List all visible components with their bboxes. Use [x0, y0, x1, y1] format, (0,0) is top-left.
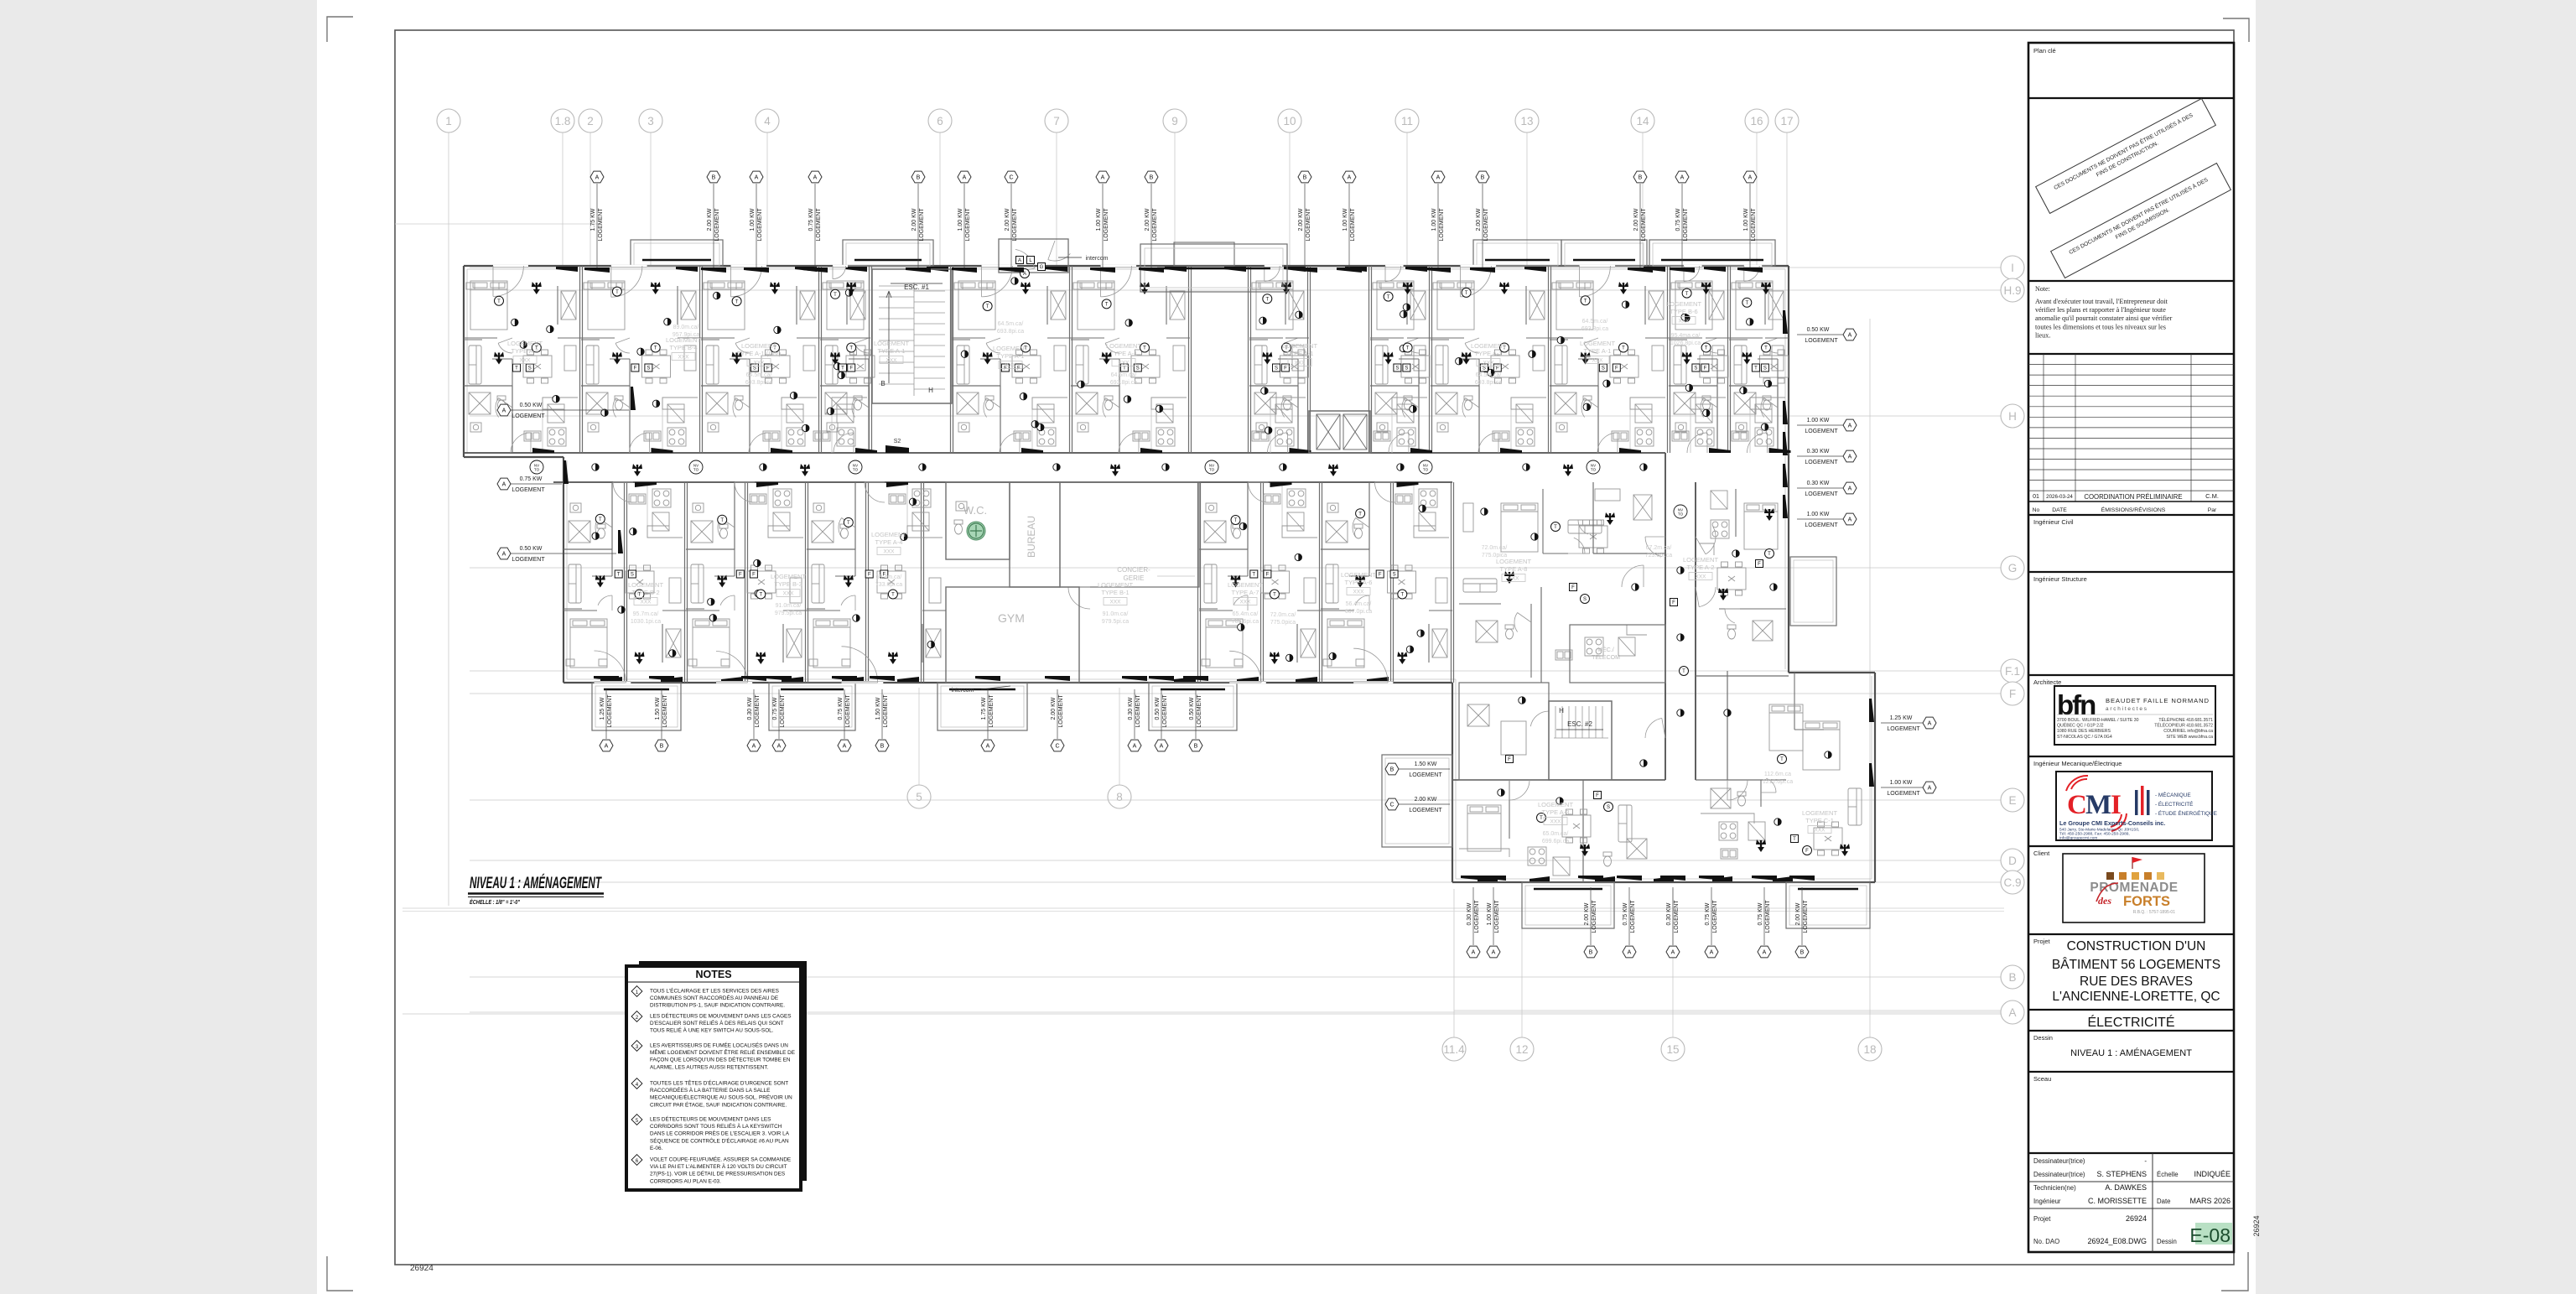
svg-text:LOGEMENT: LOGEMENT: [1805, 460, 1838, 465]
svg-text:0.75 KW: 0.75 KW: [1758, 902, 1763, 925]
svg-text:S: S: [1602, 366, 1605, 372]
svg-text:F: F: [739, 573, 742, 578]
svg-text:1.00 KW: 1.00 KW: [1890, 780, 1913, 786]
svg-text:B: B: [1194, 744, 1198, 750]
svg-text:XXX: XXX: [1592, 358, 1603, 364]
svg-text:Dessinateur(trice): Dessinateur(trice): [2033, 1171, 2085, 1178]
svg-text:MARS 2026: MARS 2026: [2189, 1197, 2231, 1205]
svg-text:B: B: [1589, 950, 1593, 956]
svg-text:16: 16: [1750, 115, 1763, 127]
svg-text:2: 2: [636, 1015, 639, 1021]
svg-text:LOGEMENT: LOGEMENT: [1012, 208, 1018, 242]
svg-text:1.8: 1.8: [555, 115, 571, 127]
svg-text:A: A: [1436, 175, 1441, 181]
svg-text:26924: 26924: [410, 1264, 434, 1273]
svg-text:BUREAU: BUREAU: [1026, 516, 1037, 558]
svg-text:XXX: XXX: [1508, 576, 1519, 582]
svg-text:T: T: [1105, 303, 1109, 308]
svg-text:A: A: [1671, 950, 1675, 956]
svg-text:11.4: 11.4: [1443, 1043, 1465, 1056]
svg-text:CONCIER-: CONCIER-: [1117, 566, 1150, 574]
svg-text:LOGEMENT: LOGEMENT: [1409, 772, 1442, 778]
svg-text:D: D: [2008, 855, 2017, 867]
svg-text:T: T: [1554, 525, 1557, 530]
svg-text:A: A: [1160, 744, 1164, 750]
svg-text:S: S: [753, 366, 756, 372]
svg-text:XXX: XXX: [885, 358, 897, 364]
svg-text:LOGEMENT: LOGEMENT: [1805, 522, 1838, 528]
svg-text:1.00 KW: 1.00 KW: [1343, 208, 1348, 231]
svg-text:0.50 KW: 0.50 KW: [1189, 697, 1195, 720]
svg-text:A: A: [986, 744, 990, 750]
svg-text:Note:: Note:: [2035, 285, 2050, 293]
svg-text:TO: TO: [693, 468, 699, 472]
svg-text:F: F: [1496, 366, 1499, 372]
svg-text:S: S: [1395, 366, 1399, 372]
svg-text:FORTS: FORTS: [2123, 894, 2170, 909]
svg-text:XXX: XXX: [1678, 319, 1690, 325]
svg-text:TYPE A-1: TYPE A-1: [878, 347, 906, 355]
svg-text:XXX: XXX: [1118, 361, 1130, 366]
svg-text:0.30 KW: 0.30 KW: [747, 697, 753, 720]
svg-text:G: G: [1040, 265, 1044, 270]
svg-text:TO: TO: [1591, 468, 1597, 472]
svg-text:B: B: [1800, 950, 1805, 956]
svg-text:2.00 KW: 2.00 KW: [1633, 208, 1639, 231]
svg-text:B: B: [712, 175, 716, 181]
svg-text:S: S: [1607, 805, 1610, 810]
svg-text:INDIQUÉE: INDIQUÉE: [2194, 1170, 2231, 1178]
svg-text:XXX: XXX: [782, 591, 794, 597]
svg-text:S: S: [528, 366, 532, 372]
svg-text:2.00 KW: 2.00 KW: [1476, 208, 1482, 231]
svg-text:VIA LE PAI ET L'ALIMENTER À 12: VIA LE PAI ET L'ALIMENTER À 120 VOLTS DU…: [650, 1162, 787, 1170]
svg-text:T: T: [847, 521, 850, 526]
svg-text:T: T: [834, 293, 837, 298]
svg-text:lieux.: lieux.: [2035, 331, 2050, 339]
svg-text:T: T: [1252, 573, 1255, 578]
svg-text:723.3pi.ca: 723.3pi.ca: [1645, 553, 1672, 559]
svg-text:CORRIDORS AU PLAN E-03.: CORRIDORS AU PLAN E-03.: [650, 1178, 721, 1184]
svg-text:Avant d'exécuter tout travail,: Avant d'exécuter tout travail, l'Entrepr…: [2035, 298, 2168, 305]
svg-text:65.0m.ca/: 65.0m.ca/: [1543, 831, 1569, 837]
svg-text:2: 2: [587, 115, 594, 127]
svg-text:S: S: [1136, 366, 1140, 372]
svg-text:A: A: [1848, 517, 1852, 523]
svg-text:1: 1: [445, 115, 452, 127]
svg-text:F: F: [1704, 366, 1707, 372]
svg-text:XXX: XXX: [883, 549, 895, 555]
svg-text:H: H: [2008, 410, 2017, 423]
svg-text:TOUTES LES TÊTES D'ÉCLAIRAGE D: TOUTES LES TÊTES D'ÉCLAIRAGE D'URGENCE S…: [650, 1079, 788, 1087]
svg-text:693.8pi.ca: 693.8pi.ca: [1475, 380, 1502, 386]
svg-text:Client: Client: [2033, 850, 2050, 857]
svg-text:ST-NICOLAS QC / G7A 0G4: ST-NICOLAS QC / G7A 0G4: [2057, 735, 2112, 740]
svg-text:LOGEMENT: LOGEMENT: [607, 694, 613, 728]
svg-text:bfn: bfn: [2057, 689, 2096, 720]
svg-text:112.6m.ca: 112.6m.ca: [1764, 772, 1791, 777]
svg-text:T: T: [497, 299, 501, 304]
svg-text:693.8pi.ca: 693.8pi.ca: [1581, 326, 1608, 332]
svg-text:A: A: [1763, 950, 1767, 956]
svg-text:DANS LE CORRIDOR PRÈS DE L'ESC: DANS LE CORRIDOR PRÈS DE L'ESCALIER 3. V…: [650, 1130, 790, 1137]
svg-text:5: 5: [916, 791, 922, 803]
svg-text:1.75 KW: 1.75 KW: [590, 208, 596, 231]
svg-text:S: S: [1583, 597, 1587, 602]
svg-text:693.8pi.ca: 693.8pi.ca: [745, 380, 772, 386]
svg-text:TYPE A-1: TYPE A-1: [1110, 350, 1138, 357]
svg-text:A: A: [1492, 950, 1496, 956]
svg-text:F: F: [868, 573, 871, 578]
svg-text:XXX: XXX: [1294, 361, 1306, 366]
svg-text:COORDINATION PRÉLIMINAIRE: COORDINATION PRÉLIMINAIRE: [2084, 493, 2182, 501]
svg-text:0.75 KW: 0.75 KW: [1675, 208, 1681, 231]
svg-text:XXX: XXX: [678, 355, 689, 361]
svg-text:LOGEMENT: LOGEMENT: [1712, 900, 1718, 933]
svg-text:TYPE A-1 (INV): TYPE A-1 (INV): [737, 350, 782, 357]
svg-text:intercom: intercom: [1086, 256, 1109, 262]
svg-text:C: C: [1055, 744, 1059, 750]
svg-text:T: T: [1273, 593, 1276, 598]
svg-text:TYPE A-1: TYPE A-1: [1475, 350, 1503, 357]
svg-text:XXX: XXX: [1483, 361, 1494, 366]
svg-text:Plan clé: Plan clé: [2033, 47, 2056, 55]
svg-text:LOGEMENT: LOGEMENT: [714, 208, 720, 242]
svg-text:architectes: architectes: [2106, 706, 2148, 712]
svg-text:GYM: GYM: [998, 611, 1025, 625]
svg-text:LOGEMENT: LOGEMENT: [883, 694, 889, 728]
svg-text:LOGEMENT: LOGEMENT: [512, 487, 545, 493]
svg-text:F: F: [849, 366, 853, 372]
svg-text:Échelle: Échelle: [2157, 1171, 2179, 1178]
svg-text:T: T: [1768, 552, 1771, 557]
svg-text:LOGEMENT: LOGEMENT: [755, 694, 761, 728]
svg-text:T: T: [1234, 518, 1238, 523]
svg-text:LOGEMENT: LOGEMENT: [1592, 900, 1597, 933]
svg-text:MÉC./: MÉC./: [1597, 646, 1614, 653]
svg-text:T: T: [1400, 593, 1404, 598]
svg-text:A: A: [1018, 258, 1021, 263]
svg-text:T: T: [1465, 291, 1468, 296]
svg-text:64.5m.ca/: 64.5m.ca/: [998, 321, 1024, 327]
svg-text:A: A: [1472, 950, 1476, 956]
svg-text:0.50 KW: 0.50 KW: [520, 403, 543, 408]
svg-text:LOGEMENT: LOGEMENT: [1341, 571, 1377, 579]
svg-text:VOLET COUPE-FEU/FUMÉE. ASSURER: VOLET COUPE-FEU/FUMÉE. ASSURER SA COMMAN…: [650, 1156, 791, 1163]
svg-text:0.75 KW: 0.75 KW: [838, 697, 844, 720]
svg-text:FAÇON QUE LORSQU'UN DES DÉTECT: FAÇON QUE LORSQU'UN DES DÉTECTEUR TOMBE …: [650, 1056, 791, 1063]
svg-text:A: A: [752, 744, 756, 750]
svg-text:LOGEMENT: LOGEMENT: [1058, 694, 1064, 728]
svg-text:LOGEMENT: LOGEMENT: [1162, 694, 1168, 728]
svg-text:A: A: [963, 175, 967, 181]
svg-text:LOGEMENT: LOGEMENT: [1805, 338, 1838, 344]
svg-text:C. MORISSETTE: C. MORISSETTE: [2088, 1197, 2147, 1205]
svg-text:0.50 KW: 0.50 KW: [1155, 697, 1161, 720]
svg-text:T: T: [617, 573, 621, 578]
svg-text:0.50 KW: 0.50 KW: [520, 546, 543, 552]
svg-text:T: T: [1622, 346, 1625, 351]
svg-text:TYPE B-2: TYPE B-2: [631, 589, 659, 596]
svg-text:T: T: [1764, 346, 1768, 351]
svg-text:5: 5: [636, 1118, 639, 1124]
svg-text:ESC. #2: ESC. #2: [1567, 720, 1592, 728]
svg-text:LOGEMENT: LOGEMENT: [1538, 801, 1574, 808]
svg-text:1.00 KW: 1.00 KW: [1487, 902, 1493, 925]
svg-text:LOGEMENT: LOGEMENT: [1228, 581, 1264, 589]
svg-text:CIRCUIT PAR ÉTAGE, SAUF INDICA: CIRCUIT PAR ÉTAGE, SAUF INDICATION CONTR…: [650, 1100, 787, 1108]
svg-text:64.5m.ca/: 64.5m.ca/: [1582, 319, 1608, 325]
svg-text:699.6pi.ca: 699.6pi.ca: [1542, 839, 1569, 844]
svg-text:1212.0pi.ca: 1212.0pi.ca: [1763, 779, 1793, 785]
svg-text:ESC. #1: ESC. #1: [904, 283, 929, 291]
svg-text:A: A: [1848, 455, 1852, 460]
svg-text:Architecte: Architecte: [2033, 678, 2061, 686]
svg-text:64.5m.ca/: 64.5m.ca/: [1111, 372, 1137, 378]
svg-text:T: T: [1265, 297, 1269, 302]
svg-text:72.0m.ca/: 72.0m.ca/: [1270, 612, 1296, 618]
svg-text:- ÉTUDE ÉNERGÉTIQUE: - ÉTUDE ÉNERGÉTIQUE: [2155, 809, 2217, 817]
svg-text:A: A: [1628, 950, 1632, 956]
svg-text:S: S: [1483, 366, 1486, 372]
svg-text:A: A: [502, 408, 506, 414]
svg-text:957.9pi.ca: 957.9pi.ca: [673, 332, 699, 338]
svg-text:LOGEMENT: LOGEMENT: [1306, 208, 1311, 242]
svg-text:LOGEMENT: LOGEMENT: [1409, 808, 1442, 813]
svg-text:ALARME, LES AUTRES AUSSI RETEN: ALARME, LES AUTRES AUSSI RETENTISSENT.: [650, 1064, 769, 1070]
svg-text:Ingénieur: Ingénieur: [2033, 1198, 2061, 1205]
svg-text:A: A: [1928, 721, 1932, 727]
svg-text:LOGEMENT: LOGEMENT: [1887, 726, 1920, 732]
svg-text:7: 7: [1053, 115, 1060, 127]
svg-text:T: T: [986, 304, 989, 309]
svg-text:91.0m.ca/: 91.0m.ca/: [776, 603, 802, 609]
svg-text:T: T: [849, 346, 853, 351]
svg-text:LES AVERTISSEURS DE FUMÉE LOCA: LES AVERTISSEURS DE FUMÉE LOCALISÉS DANS…: [650, 1042, 788, 1049]
svg-text:A: A: [1928, 786, 1932, 792]
svg-text:775.0pica: 775.0pica: [1270, 620, 1296, 626]
svg-text:TYPE B-6: TYPE B-6: [1670, 308, 1697, 315]
svg-text:XXX: XXX: [1814, 828, 1826, 834]
svg-text:LOGEMENT: LOGEMENT: [1887, 791, 1920, 797]
svg-text:67.2m.ca/: 67.2m.ca/: [1646, 545, 1672, 551]
svg-text:Par: Par: [2208, 507, 2217, 513]
svg-text:979.5pi.ca: 979.5pi.ca: [1102, 619, 1129, 625]
svg-text:1.00 KW: 1.00 KW: [1807, 512, 1830, 517]
svg-text:1.00 KW: 1.00 KW: [1096, 208, 1102, 231]
svg-text:6: 6: [636, 1158, 639, 1164]
svg-text:1.75 KW: 1.75 KW: [981, 697, 987, 720]
svg-text:A: A: [595, 175, 600, 181]
svg-text:LES DÉTECTEURS DE MOUVEMENT DA: LES DÉTECTEURS DE MOUVEMENT DANS LES: [650, 1115, 771, 1123]
svg-text:T: T: [759, 593, 762, 598]
svg-text:F: F: [1672, 600, 1675, 605]
svg-text:95.4ma.ca/: 95.4ma.ca/: [1671, 333, 1701, 339]
svg-text:1.25 KW: 1.25 KW: [600, 697, 605, 720]
svg-text:LOGEMENT: LOGEMENT: [965, 208, 971, 242]
svg-text:T: T: [1682, 669, 1685, 674]
svg-text:-: -: [2144, 1157, 2147, 1165]
svg-text:T: T: [599, 517, 602, 522]
svg-text:B: B: [2008, 971, 2016, 984]
svg-text:LOGEMENT: LOGEMENT: [1765, 900, 1771, 933]
svg-text:PROMENADE: PROMENADE: [2090, 881, 2178, 895]
svg-text:S: S: [1694, 366, 1697, 372]
svg-text:Le Groupe CMI Experts-Conseils: Le Groupe CMI Experts-Conseils inc.: [2059, 819, 2165, 827]
svg-text:Dessin: Dessin: [2157, 1238, 2177, 1245]
svg-text:9: 9: [1171, 115, 1178, 127]
svg-text:1.00 KW: 1.00 KW: [958, 208, 963, 231]
svg-text:1.25 KW: 1.25 KW: [1890, 715, 1913, 721]
svg-text:64.5m.ca/: 64.5m.ca/: [746, 372, 772, 378]
svg-text:- MÉCANIQUE: - MÉCANIQUE: [2155, 791, 2191, 798]
svg-text:M: M: [2085, 790, 2111, 820]
svg-text:693.8pi.ca: 693.8pi.ca: [997, 329, 1024, 335]
svg-text:F: F: [1571, 585, 1575, 590]
svg-text:0.30 KW: 0.30 KW: [1128, 697, 1134, 720]
svg-text:BEAUDET FAILLE NORMAND: BEAUDET FAILLE NORMAND: [2106, 697, 2210, 704]
svg-text:XXX: XXX: [519, 358, 531, 364]
svg-text:T: T: [1754, 366, 1758, 372]
svg-text:A: A: [2008, 1006, 2016, 1019]
svg-text:2.00 KW: 2.00 KW: [1145, 208, 1150, 231]
svg-text:COURRIEL info@bfna.ca: COURRIEL info@bfna.ca: [2163, 729, 2213, 734]
svg-text:Technicien(ne): Technicien(ne): [2033, 1184, 2076, 1192]
svg-text:2.00 KW: 2.00 KW: [911, 208, 917, 231]
svg-text:LOGEMENT: LOGEMENT: [871, 531, 907, 538]
svg-text:XXX: XXX: [1695, 574, 1706, 580]
svg-text:0.75 KW: 0.75 KW: [1705, 902, 1711, 925]
svg-text:775.0pica: 775.0pica: [1482, 553, 1507, 559]
svg-text:F: F: [1266, 573, 1270, 578]
svg-text:F: F: [1379, 573, 1382, 578]
svg-text:TYPE B-1: TYPE B-1: [1101, 589, 1129, 596]
svg-text:0.75 KW: 0.75 KW: [1623, 902, 1628, 925]
svg-text:B: B: [1481, 175, 1485, 181]
svg-text:toutes les dimensions et tous: toutes les dimensions et tous les niveau…: [2035, 323, 2166, 330]
svg-text:D'ESCALIER SONT RELIÉS À DES R: D'ESCALIER SONT RELIÉS À DES RELAIS QUI …: [650, 1019, 784, 1026]
svg-text:S: S: [1405, 366, 1408, 372]
svg-text:ÉCHELLE : 1/8" = 1'-0": ÉCHELLE : 1/8" = 1'-0": [470, 898, 521, 906]
svg-text:B: B: [917, 175, 921, 181]
svg-text:1.00 KW: 1.00 KW: [750, 208, 756, 231]
svg-text:XXX: XXX: [640, 600, 652, 605]
svg-text:91.0m.ca/: 91.0m.ca/: [1103, 611, 1129, 617]
svg-text:13: 13: [1520, 115, 1533, 127]
svg-text:T: T: [1745, 301, 1748, 306]
svg-text:Date: Date: [2157, 1198, 2170, 1205]
svg-text:A: A: [843, 744, 847, 750]
svg-text:LOGEMENT: LOGEMENT: [1802, 809, 1838, 817]
svg-text:LOGEMENT: LOGEMENT: [1803, 900, 1809, 933]
svg-text:No: No: [2033, 507, 2040, 513]
svg-text:No. DAO: No. DAO: [2033, 1238, 2059, 1245]
svg-text:TOUS RELIÉ À UNE KEY SWITCH AU: TOUS RELIÉ À UNE KEY SWITCH AU SOUS-SOL.: [650, 1026, 774, 1034]
svg-text:NOTES: NOTES: [695, 969, 731, 980]
svg-text:TÉLECOM: TÉLECOM: [1592, 653, 1620, 661]
svg-text:0.30 KW: 0.30 KW: [1807, 449, 1830, 455]
svg-text:F: F: [766, 366, 770, 372]
svg-text:BÂTIMENT 56 LOGEMENTS: BÂTIMENT 56 LOGEMENTS: [2052, 958, 2220, 972]
svg-text:LOGEMENT: LOGEMENT: [512, 557, 545, 563]
svg-text:TYPE A-1: TYPE A-1: [1286, 350, 1314, 357]
svg-text:LOGEMENT: LOGEMENT: [1106, 342, 1142, 350]
svg-text:3: 3: [636, 1044, 639, 1050]
svg-text:C: C: [2067, 790, 2087, 820]
svg-text:0.75 KW: 0.75 KW: [772, 697, 778, 720]
svg-text:anomalie qu'il pourrait consta: anomalie qu'il pourrait constater ainsi …: [2035, 314, 2173, 322]
svg-text:15: 15: [1666, 1043, 1679, 1056]
svg-text:693.8pi.ca: 693.8pi.ca: [1110, 380, 1137, 386]
svg-text:1: 1: [636, 990, 639, 995]
svg-text:LOGEMENT: LOGEMENT: [628, 581, 664, 589]
svg-text:A: A: [502, 552, 506, 558]
svg-text:1.50 KW: 1.50 KW: [875, 697, 881, 720]
svg-text:TYPE B-4: TYPE B-4: [669, 344, 697, 351]
svg-text:B: B: [880, 380, 885, 387]
svg-text:TYPE A-6: TYPE A-6: [1345, 579, 1373, 586]
svg-text:2.00 KW: 2.00 KW: [1584, 902, 1590, 925]
svg-text:NIVEAU 1 : AMÉNAGEMENT: NIVEAU 1 : AMÉNAGEMENT: [2070, 1047, 2192, 1058]
svg-text:T: T: [720, 518, 724, 523]
svg-text:ÉMISSIONS/RÉVISIONS: ÉMISSIONS/RÉVISIONS: [2101, 506, 2166, 513]
svg-text:T: T: [515, 366, 518, 372]
svg-text:des: des: [2098, 895, 2111, 907]
svg-text:S: S: [1275, 366, 1278, 372]
svg-text:LOGEMENT: LOGEMENT: [1496, 558, 1532, 565]
svg-text:89.0m.ca/: 89.0m.ca/: [673, 325, 699, 330]
svg-text:72.0m.ca/: 72.0m.ca/: [1482, 545, 1508, 551]
svg-text:E-08: E-08: [2189, 1224, 2231, 1246]
svg-text:B: B: [880, 744, 885, 750]
svg-text:T: T: [1540, 816, 1543, 821]
svg-text:2026-03-24: 2026-03-24: [2046, 494, 2073, 500]
svg-text:LOGEMENT: LOGEMENT: [1683, 208, 1689, 242]
svg-text:T: T: [1584, 299, 1587, 304]
svg-text:LOGEMENT: LOGEMENT: [1674, 900, 1680, 933]
svg-text:26924: 26924: [2126, 1214, 2147, 1223]
svg-text:TYPE C-1: TYPE C-1: [1805, 817, 1834, 824]
svg-text:LOGEMENT: LOGEMENT: [1439, 208, 1445, 242]
svg-text:C: C: [1389, 803, 1394, 808]
svg-text:LOGEMENT: LOGEMENT: [1197, 694, 1202, 728]
svg-text:LOGEMENT: LOGEMENT: [1474, 900, 1480, 933]
svg-text:E: E: [2008, 794, 2016, 807]
svg-text:0.75 KW: 0.75 KW: [520, 476, 543, 482]
svg-text:TO: TO: [1423, 468, 1429, 472]
svg-text:1.00 KW: 1.00 KW: [1807, 418, 1830, 424]
svg-text:TYPE B-3: TYPE B-3: [774, 580, 802, 588]
svg-text:LOGEMENT: LOGEMENT: [1805, 429, 1838, 434]
svg-text:DISTRIBUTION PS-1, SAUF INDICA: DISTRIBUTION PS-1, SAUF INDICATION CONTR…: [650, 1003, 785, 1009]
svg-text:CORRIDORS SONT TOUS RELIÉS À L: CORRIDORS SONT TOUS RELIÉS À LA KEYSWITC…: [650, 1122, 782, 1130]
svg-text:C.9: C.9: [2003, 876, 2021, 889]
svg-text:Projet: Projet: [2033, 938, 2051, 945]
svg-text:LOGEMENT: LOGEMENT: [1104, 208, 1109, 242]
svg-text:1080 RUE DES HERBIERS: 1080 RUE DES HERBIERS: [2057, 729, 2111, 734]
svg-text:TO: TO: [534, 468, 540, 472]
svg-text:Ingénieur Civil: Ingénieur Civil: [2033, 518, 2074, 526]
svg-text:XXX: XXX: [1550, 819, 1561, 825]
svg-text:2.00 KW: 2.00 KW: [1298, 208, 1304, 231]
svg-text:TO: TO: [1678, 512, 1684, 517]
svg-text:B: B: [1639, 175, 1643, 181]
svg-text:R.B.Q. : 5757-1895-01: R.B.Q. : 5757-1895-01: [2133, 910, 2176, 915]
svg-text:A: A: [1133, 744, 1137, 750]
svg-text:A: A: [1023, 272, 1026, 277]
svg-text:A: A: [1848, 486, 1852, 492]
svg-text:TÉLÉCOPIEUR 418.681.3572: TÉLÉCOPIEUR 418.681.3572: [2154, 723, 2213, 729]
